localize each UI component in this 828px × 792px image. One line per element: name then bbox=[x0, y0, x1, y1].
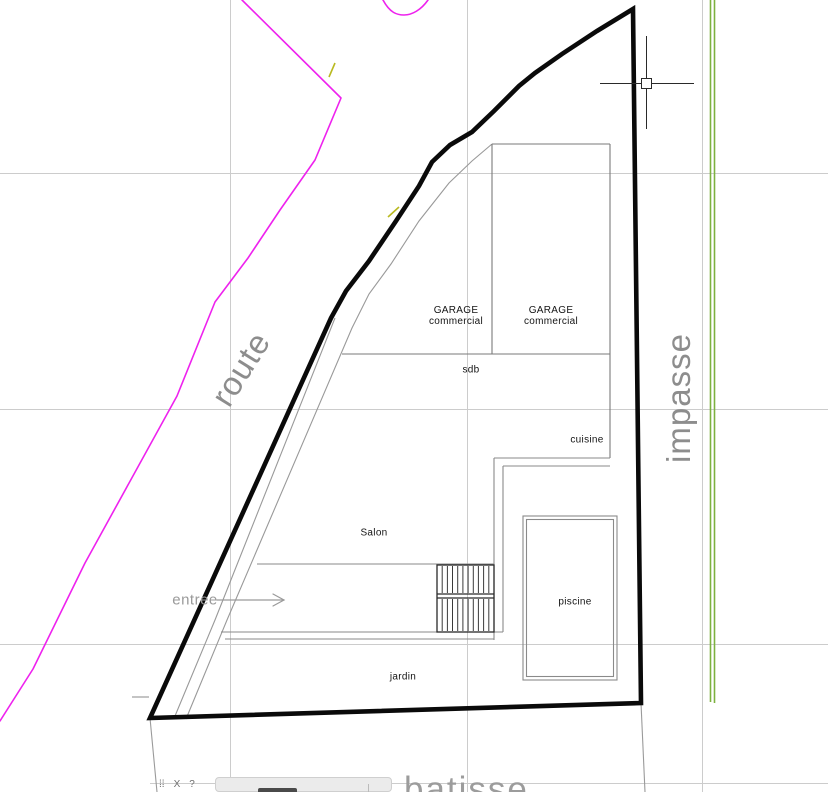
entree-arrow bbox=[217, 594, 284, 606]
command-bar-glyphs: ⁞⁞ X ? bbox=[159, 778, 195, 792]
cad-viewport: GARAGE commercial GARAGE commercial sdb … bbox=[0, 0, 828, 792]
label-cuisine: cuisine bbox=[570, 435, 603, 446]
crosshair-cursor bbox=[600, 36, 694, 129]
impasse-edge-lines bbox=[711, 0, 715, 703]
help-icon[interactable]: ? bbox=[189, 778, 195, 792]
label-jardin: jardin bbox=[390, 672, 416, 683]
grip-handle-icon[interactable]: ⁞⁞ bbox=[159, 778, 165, 792]
label-batisse: batisse bbox=[404, 770, 529, 792]
command-bar-separator bbox=[368, 784, 369, 792]
label-garage-right: GARAGE commercial bbox=[524, 305, 578, 327]
road-polyline bbox=[0, 0, 428, 721]
label-piscine: piscine bbox=[558, 597, 591, 608]
command-prompt-icon[interactable] bbox=[258, 788, 297, 792]
pickbox bbox=[642, 79, 652, 89]
axis-x-label: X bbox=[174, 778, 181, 792]
label-salon: Salon bbox=[360, 528, 387, 539]
survey-fleck bbox=[329, 63, 399, 217]
stairs bbox=[437, 565, 494, 632]
label-entree: entree bbox=[172, 592, 218, 609]
label-garage-left: GARAGE commercial bbox=[429, 305, 483, 327]
command-bar[interactable] bbox=[215, 777, 392, 792]
label-impasse: impasse bbox=[660, 333, 698, 463]
interior-walls bbox=[132, 144, 645, 792]
label-sdb: sdb bbox=[462, 365, 479, 376]
